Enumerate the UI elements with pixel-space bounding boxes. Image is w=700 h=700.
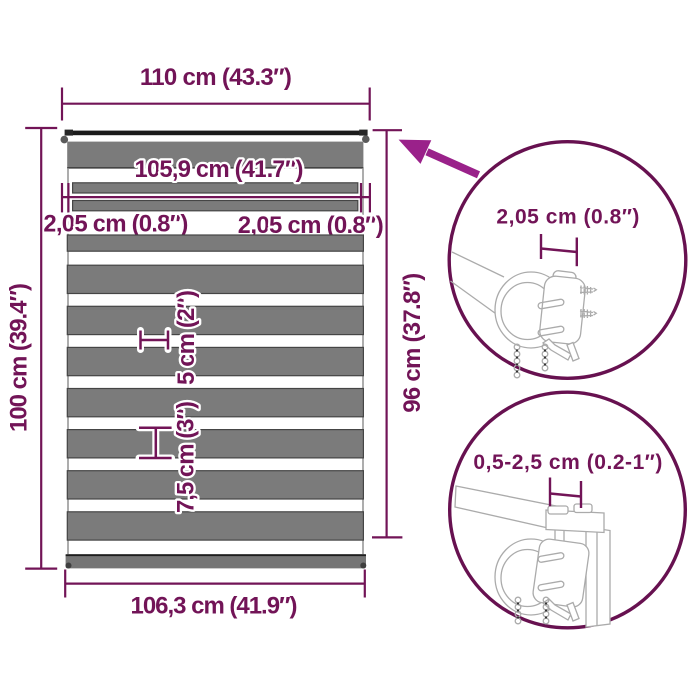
svg-text:105,9 cm (41.7″): 105,9 cm (41.7″)	[135, 156, 304, 183]
svg-text:110 cm (43.3″): 110 cm (43.3″)	[140, 64, 292, 91]
svg-text:100 cm (39.4″): 100 cm (39.4″)	[6, 283, 33, 432]
svg-text:0,5-2,5 cm (0.2-1″): 0,5-2,5 cm (0.2-1″)	[473, 451, 662, 474]
svg-text:2,05 cm (0.8″): 2,05 cm (0.8″)	[43, 211, 188, 238]
svg-text:7,5 cm (3″): 7,5 cm (3″)	[173, 401, 200, 513]
svg-text:96 cm (37.8″): 96 cm (37.8″)	[399, 273, 426, 413]
svg-text:2,05 cm (0.8″): 2,05 cm (0.8″)	[496, 206, 639, 229]
svg-text:106,3 cm (41.9″): 106,3 cm (41.9″)	[131, 593, 298, 620]
svg-text:5 cm (2″): 5 cm (2″)	[173, 290, 200, 385]
